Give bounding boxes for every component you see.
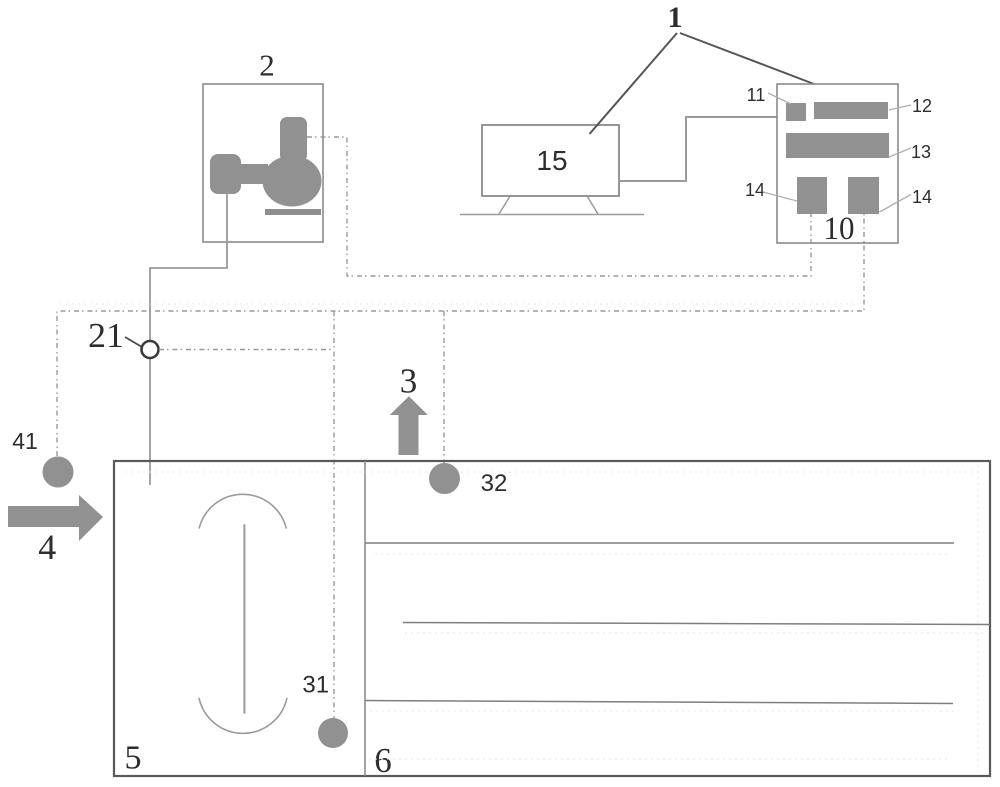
- svg-text:6: 6: [374, 741, 392, 780]
- svg-text:32: 32: [481, 470, 508, 497]
- svg-text:14: 14: [912, 187, 932, 207]
- svg-text:14: 14: [745, 180, 765, 200]
- svg-text:11: 11: [747, 85, 766, 105]
- svg-text:4: 4: [38, 527, 56, 567]
- svg-text:12: 12: [912, 96, 932, 116]
- svg-text:41: 41: [12, 428, 38, 454]
- svg-text:31: 31: [302, 672, 329, 699]
- svg-text:10: 10: [824, 211, 855, 247]
- svg-text:21: 21: [88, 316, 124, 355]
- svg-text:1: 1: [668, 1, 683, 34]
- svg-text:2: 2: [259, 48, 275, 83]
- svg-text:3: 3: [400, 362, 418, 401]
- svg-text:5: 5: [125, 740, 142, 777]
- svg-text:13: 13: [911, 142, 931, 162]
- svg-text:15: 15: [536, 145, 567, 176]
